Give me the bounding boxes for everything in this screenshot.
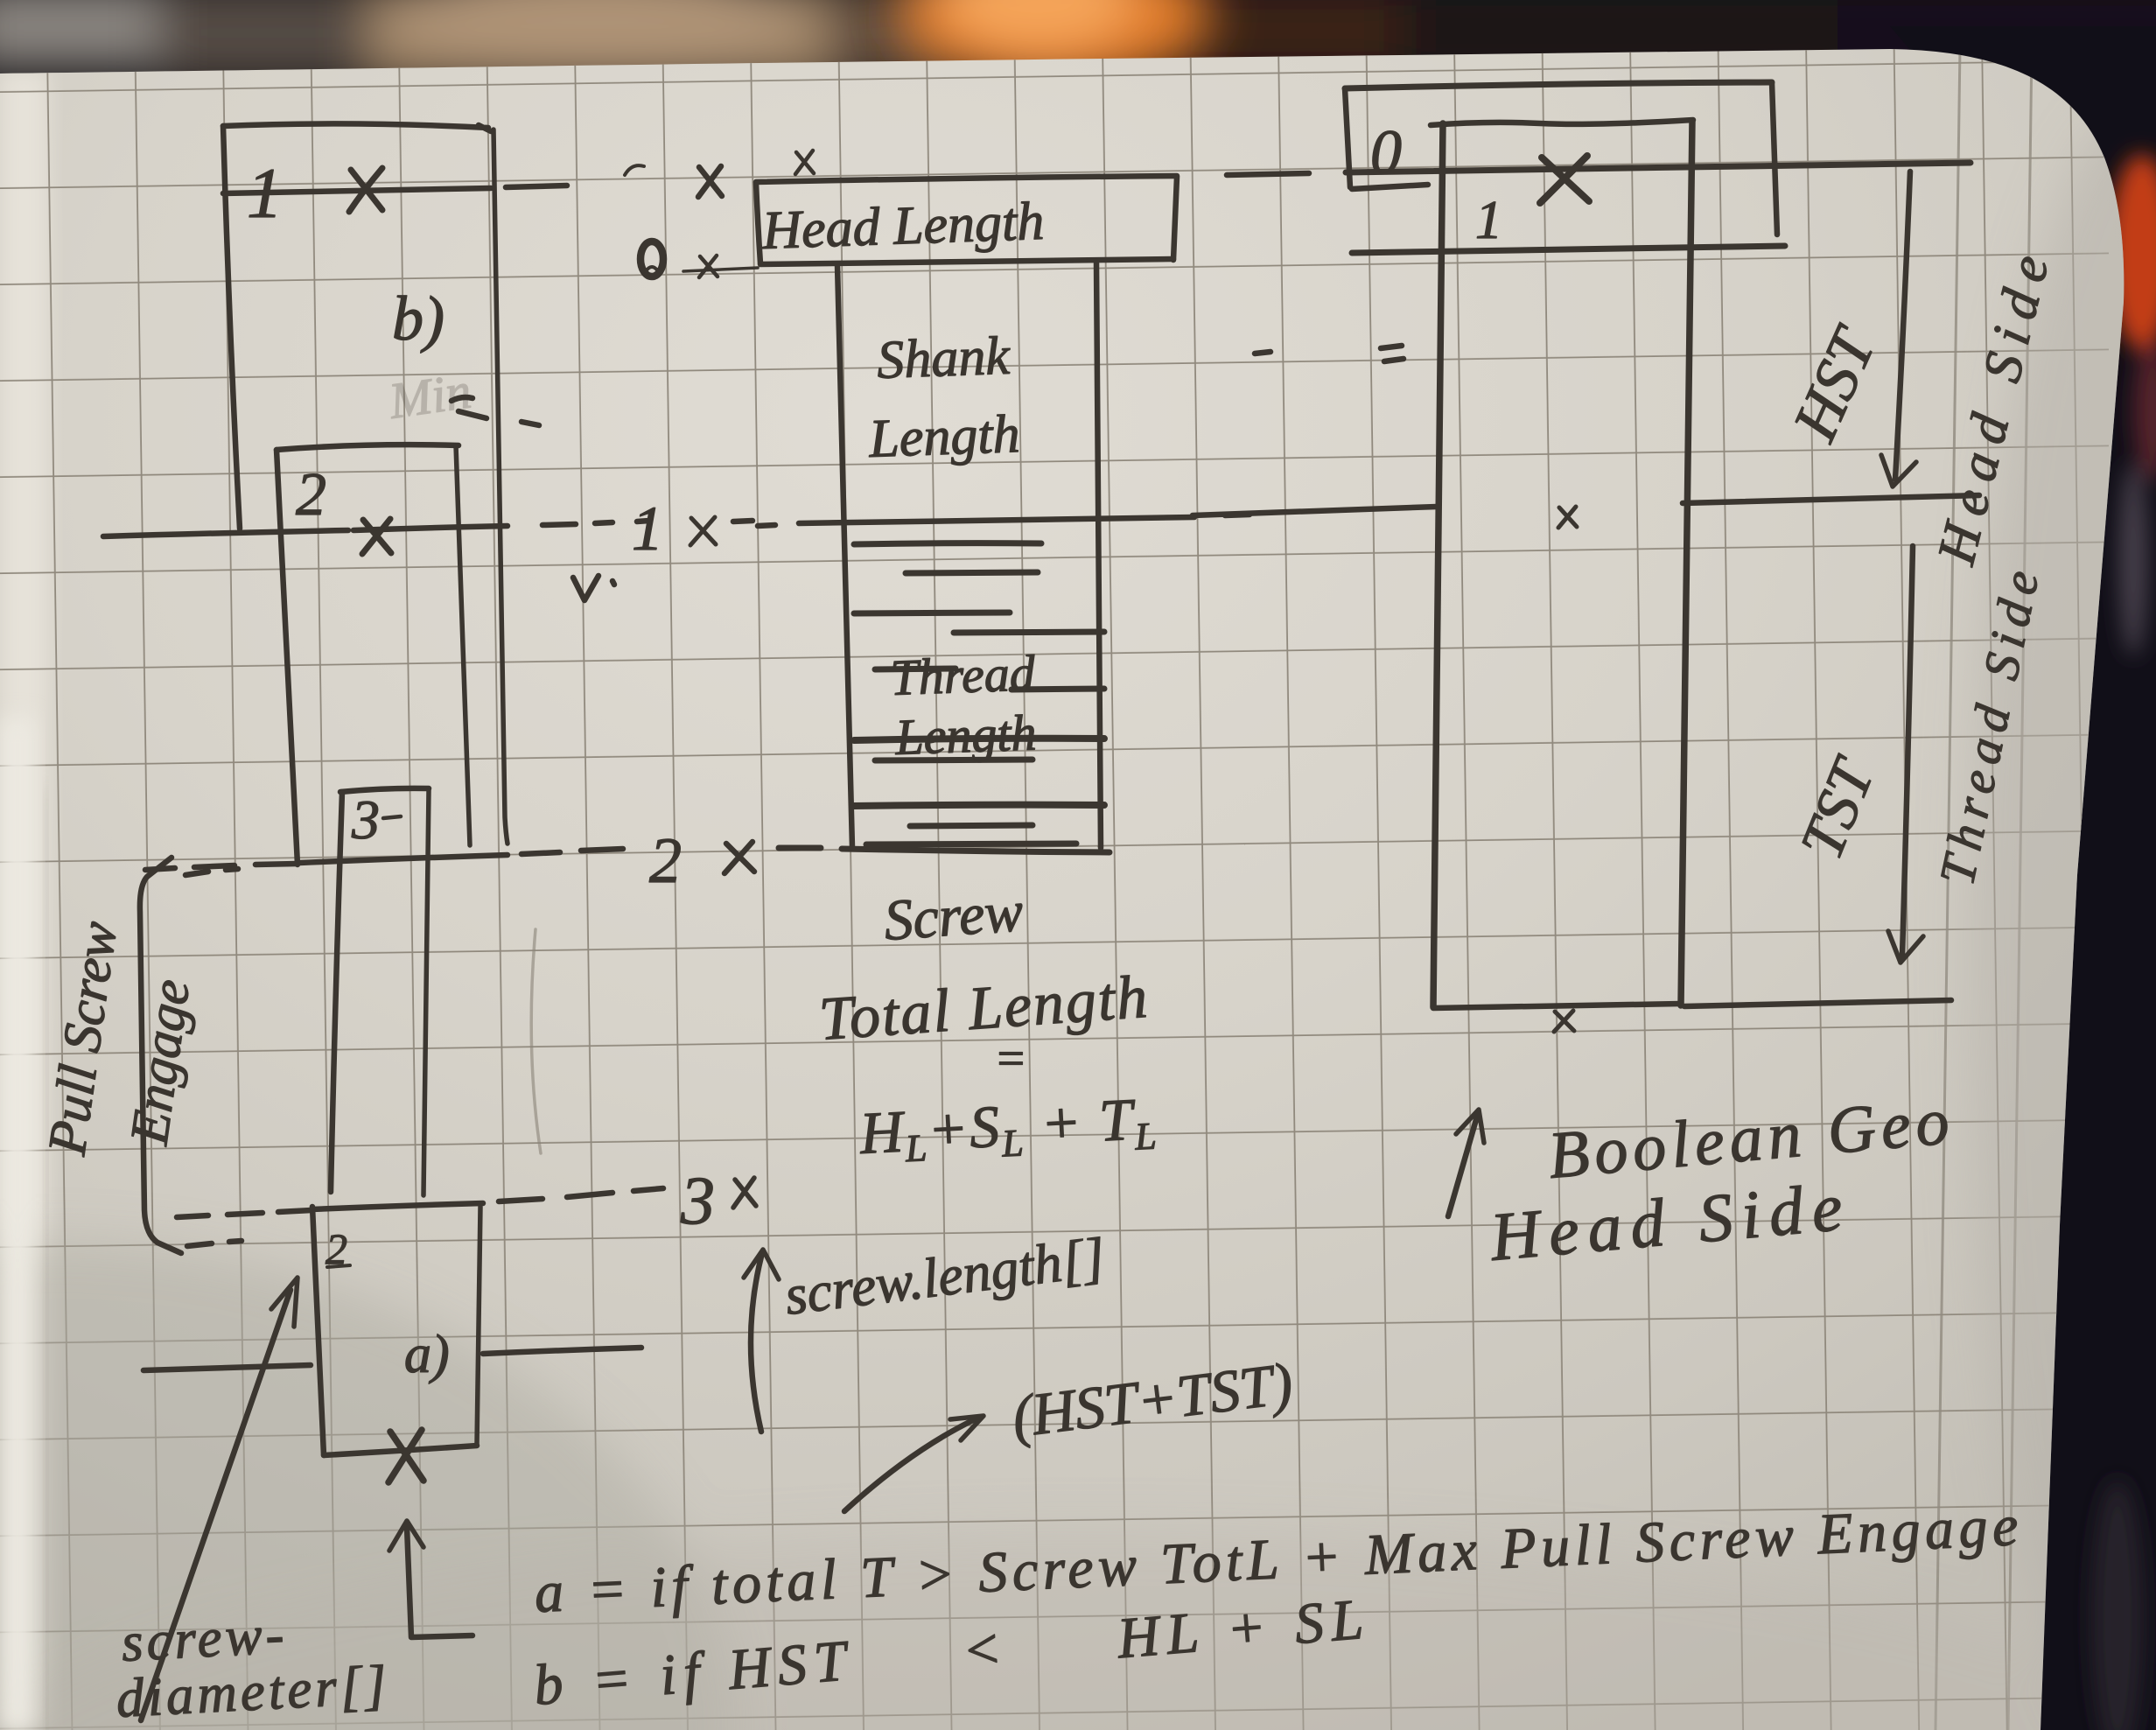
svg-text:1: 1 — [1475, 191, 1502, 250]
svg-text:1: 1 — [632, 494, 663, 564]
svg-text:Length: Length — [867, 404, 1021, 469]
svg-text:a): a) — [404, 1325, 450, 1384]
svg-text:1: 1 — [247, 153, 283, 233]
svg-text:3: 3 — [680, 1162, 715, 1238]
svg-text:Head Length: Head Length — [760, 192, 1045, 261]
svg-text:2: 2 — [296, 461, 326, 529]
svg-text:Length: Length — [893, 704, 1037, 766]
svg-text:Thread: Thread — [889, 644, 1037, 706]
svg-text:=: = — [994, 1032, 1027, 1086]
svg-text:0: 0 — [1370, 117, 1402, 187]
svg-text:Shank: Shank — [876, 326, 1011, 390]
svg-text:Screw: Screw — [882, 879, 1025, 953]
svg-text:3: 3 — [351, 788, 380, 851]
svg-text:b): b) — [392, 284, 444, 354]
svg-text:2: 2 — [649, 825, 682, 897]
